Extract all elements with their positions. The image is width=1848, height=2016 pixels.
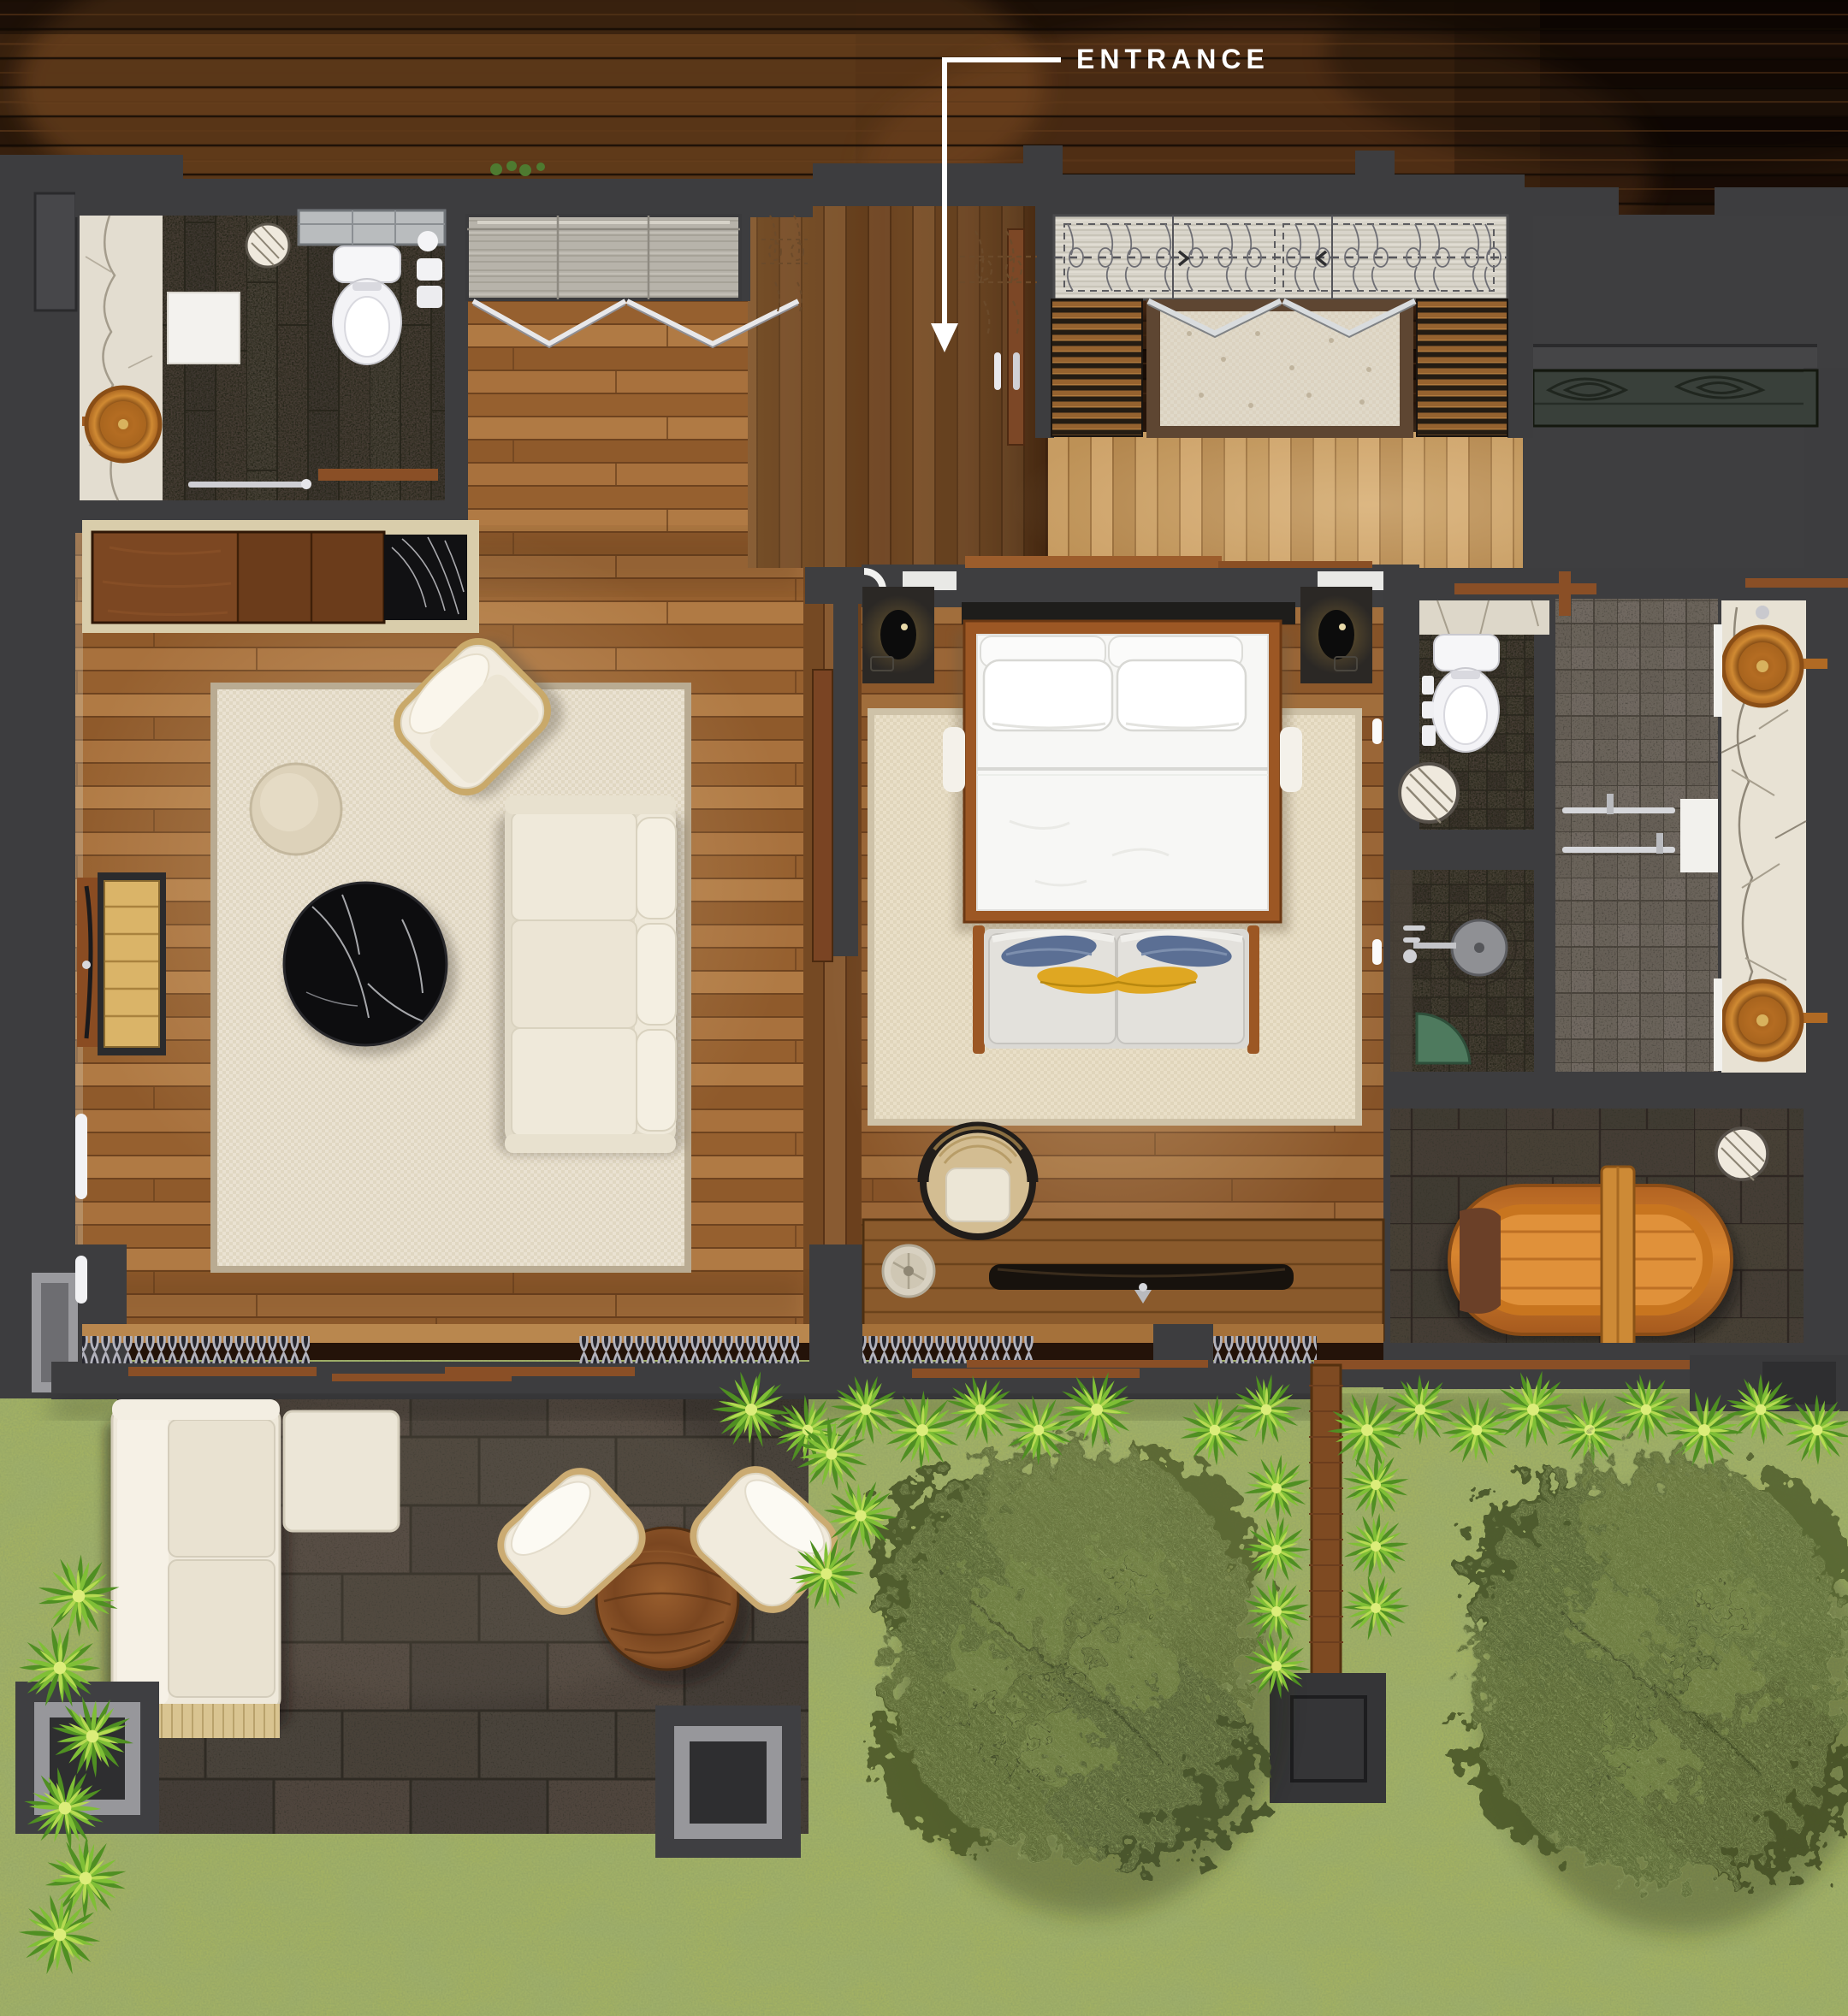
svg-text:ENTRANCE: ENTRANCE (1076, 44, 1270, 74)
